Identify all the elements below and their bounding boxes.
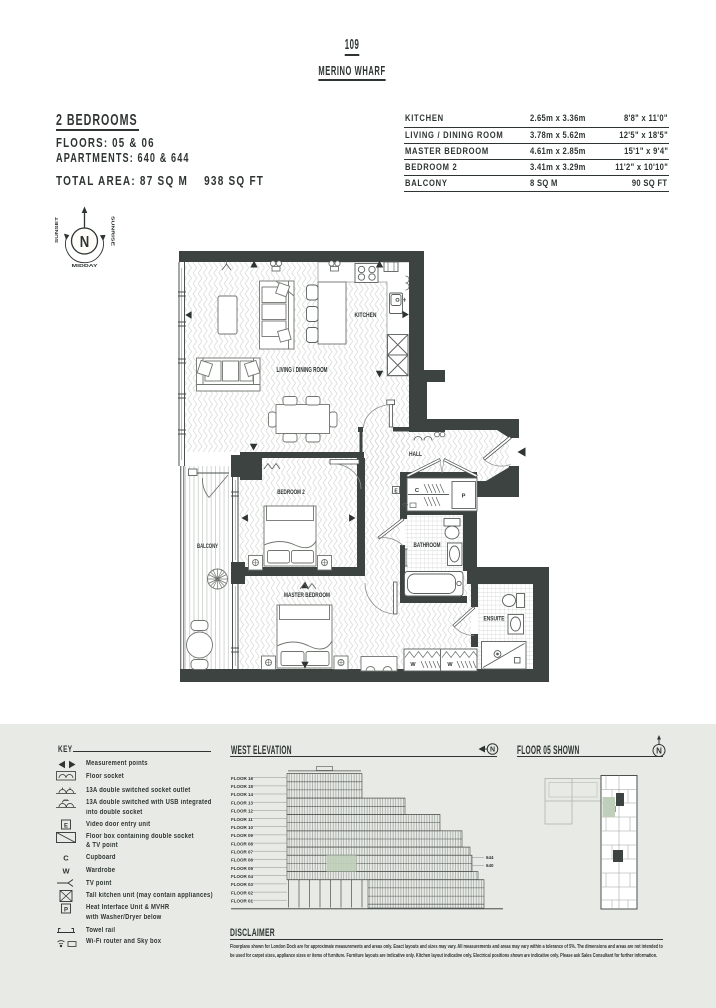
- svg-text:FLOOR 06: FLOOR 06: [231, 858, 254, 863]
- svg-text:W: W: [62, 867, 70, 876]
- svg-text:HALL: HALL: [409, 451, 422, 458]
- svg-text:LIVING / DINING ROOM: LIVING / DINING ROOM: [277, 367, 328, 374]
- svg-text:FLOOR 10: FLOOR 10: [231, 825, 254, 830]
- svg-text:MASTER BEDROOM: MASTER BEDROOM: [284, 592, 330, 599]
- svg-text:ENSUITE: ENSUITE: [484, 616, 506, 623]
- svg-text:N: N: [490, 747, 495, 754]
- svg-text:P: P: [64, 907, 68, 913]
- svg-text:W: W: [410, 662, 416, 668]
- svg-text:SUNSET: SUNSET: [54, 217, 59, 243]
- svg-text:E: E: [64, 823, 68, 829]
- svg-text:FLOOR 11: FLOOR 11: [231, 817, 253, 822]
- svg-text:FLOOR 08: FLOOR 08: [231, 841, 254, 846]
- svg-text:FLOOR 12: FLOOR 12: [231, 809, 254, 814]
- svg-text:P: P: [462, 494, 466, 500]
- svg-text:FLOOR 05: FLOOR 05: [231, 866, 254, 871]
- svg-text:FLOOR 15: FLOOR 15: [231, 784, 254, 789]
- svg-text:FLOOR 07: FLOOR 07: [231, 849, 254, 854]
- svg-text:SUNRISE: SUNRISE: [111, 216, 116, 246]
- svg-text:FLOOR 09: FLOOR 09: [231, 833, 254, 838]
- svg-text:640: 640: [486, 863, 494, 868]
- svg-text:BALCONY: BALCONY: [197, 544, 218, 550]
- svg-text:KITCHEN: KITCHEN: [355, 312, 377, 319]
- svg-text:N: N: [80, 234, 90, 251]
- svg-text:MIDDAY: MIDDAY: [72, 263, 98, 268]
- svg-text:BATHROOM: BATHROOM: [414, 542, 441, 549]
- svg-text:644: 644: [486, 855, 494, 860]
- svg-text:W: W: [447, 662, 453, 668]
- svg-text:FLOOR 16: FLOOR 16: [231, 776, 254, 781]
- svg-text:BEDROOM 2: BEDROOM 2: [277, 489, 305, 496]
- svg-text:N: N: [656, 747, 662, 756]
- svg-text:FLOOR 04: FLOOR 04: [231, 874, 254, 879]
- svg-text:C: C: [63, 854, 69, 863]
